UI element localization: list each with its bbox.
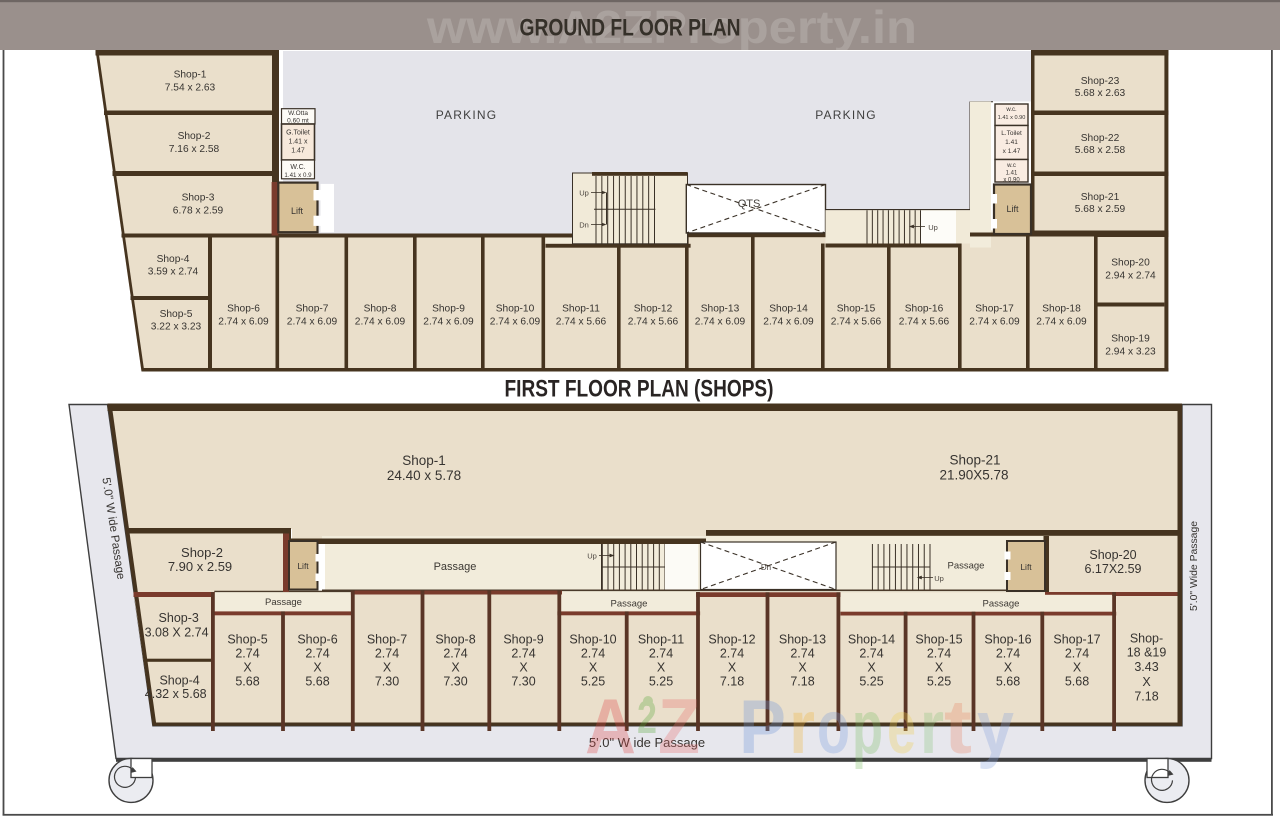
svg-text:Shop-11: Shop-11: [638, 633, 684, 647]
svg-text:Shop-5: Shop-5: [160, 309, 193, 320]
svg-text:Shop-1: Shop-1: [174, 70, 207, 81]
svg-text:Lift: Lift: [291, 206, 304, 216]
svg-text:7.30: 7.30: [443, 675, 467, 689]
svg-text:Lift: Lift: [297, 561, 309, 571]
svg-text:x 0.90: x 0.90: [1003, 178, 1020, 184]
svg-text:FIRST FLOOR PLAN (SHOPS): FIRST FLOOR PLAN (SHOPS): [505, 376, 774, 403]
svg-text:X: X: [313, 661, 322, 675]
svg-text:5.68 x 2.59: 5.68 x 2.59: [1075, 204, 1126, 215]
svg-text:1.41: 1.41: [1005, 139, 1018, 146]
svg-text:Shop-7: Shop-7: [367, 633, 407, 647]
svg-text:1.47: 1.47: [291, 148, 305, 155]
svg-text:2.74 x 6.09: 2.74 x 6.09: [423, 317, 474, 328]
svg-text:Shop-3: Shop-3: [182, 193, 215, 204]
svg-text:Lift: Lift: [1006, 204, 1019, 214]
svg-text:2.74: 2.74: [1065, 647, 1089, 661]
svg-text:5.68 x 2.58: 5.68 x 2.58: [1075, 145, 1126, 156]
svg-text:Shop-15: Shop-15: [837, 304, 876, 315]
svg-text:5.68 x 2.63: 5.68 x 2.63: [1075, 88, 1126, 99]
svg-text:W.C.: W.C.: [290, 164, 305, 171]
svg-text:7.30: 7.30: [511, 675, 535, 689]
svg-text:2.74: 2.74: [511, 647, 535, 661]
svg-text:2.74 x 6.09: 2.74 x 6.09: [695, 317, 746, 328]
svg-text:2.74: 2.74: [720, 647, 744, 661]
svg-text:Shop-23: Shop-23: [1081, 76, 1120, 87]
svg-text:1.41 x 0.9: 1.41 x 0.9: [284, 172, 312, 179]
svg-text:2.74 x 5.66: 2.74 x 5.66: [628, 317, 679, 328]
svg-text:x 1.47: x 1.47: [1003, 148, 1021, 155]
svg-text:2.74: 2.74: [859, 647, 883, 661]
svg-text:p: p: [852, 685, 883, 770]
svg-text:Z: Z: [658, 682, 700, 770]
svg-text:Dn: Dn: [761, 563, 771, 572]
svg-text:5'.0" Wide Passage: 5'.0" Wide Passage: [1189, 521, 1200, 611]
svg-text:Shop-12: Shop-12: [708, 633, 755, 647]
svg-text:X: X: [1073, 661, 1082, 675]
svg-text:Passage: Passage: [265, 597, 302, 608]
svg-text:1.41 x: 1.41 x: [288, 139, 308, 146]
svg-text:X: X: [798, 661, 807, 675]
svg-text:Shop-16: Shop-16: [984, 633, 1031, 647]
svg-text:Shop-2: Shop-2: [178, 131, 211, 142]
svg-text:2.74: 2.74: [996, 647, 1020, 661]
svg-text:y: y: [977, 685, 1014, 770]
svg-text:r: r: [789, 685, 815, 770]
svg-text:X: X: [867, 661, 876, 675]
svg-text:2.74: 2.74: [649, 647, 673, 661]
svg-text:X: X: [728, 661, 737, 675]
svg-text:2.74: 2.74: [927, 647, 951, 661]
svg-text:P: P: [739, 685, 786, 770]
svg-text:6.78 x 2.59: 6.78 x 2.59: [173, 206, 224, 217]
svg-text:Shop-13: Shop-13: [779, 633, 826, 647]
svg-text:Shop-9: Shop-9: [503, 633, 543, 647]
svg-text:2.74: 2.74: [305, 647, 329, 661]
svg-text:Shop-11: Shop-11: [562, 304, 600, 315]
svg-text:X: X: [657, 661, 666, 675]
svg-text:r: r: [920, 685, 944, 770]
svg-text:X: X: [935, 661, 944, 675]
svg-text:3.59 x 2.74: 3.59 x 2.74: [148, 267, 199, 278]
svg-text:Shop-4: Shop-4: [159, 674, 199, 688]
svg-text:7.90 x 2.59: 7.90 x 2.59: [168, 559, 232, 574]
svg-text:Shop-15: Shop-15: [915, 633, 962, 647]
svg-text:G.Toilet: G.Toilet: [286, 130, 310, 137]
svg-text:Shop-21: Shop-21: [949, 453, 1000, 468]
svg-text:w.c: w.c: [1006, 163, 1016, 169]
svg-text:X: X: [589, 661, 598, 675]
svg-text:2.74 x 5.66: 2.74 x 5.66: [556, 317, 607, 328]
svg-text:Shop-7: Shop-7: [296, 304, 329, 315]
svg-text:Shop-6: Shop-6: [297, 633, 337, 647]
svg-text:2.74 x 6.09: 2.74 x 6.09: [490, 317, 541, 328]
svg-text:Shop-22: Shop-22: [1081, 133, 1120, 144]
svg-text:Shop-8: Shop-8: [435, 633, 475, 647]
svg-text:Up: Up: [587, 552, 597, 561]
svg-text:2.74 x 6.09: 2.74 x 6.09: [287, 317, 338, 328]
svg-text:X: X: [383, 661, 392, 675]
svg-text:7.16 x 2.58: 7.16 x 2.58: [169, 144, 220, 155]
svg-text:2.74 x 6.09: 2.74 x 6.09: [763, 317, 814, 328]
svg-text:Shop-5: Shop-5: [227, 633, 267, 647]
svg-text:24.40 x 5.78: 24.40 x 5.78: [387, 468, 461, 483]
svg-text:Up: Up: [934, 574, 944, 583]
svg-text:Shop-18: Shop-18: [1042, 304, 1081, 315]
svg-text:Passage: Passage: [434, 561, 477, 573]
svg-text:3.43: 3.43: [1134, 660, 1158, 674]
svg-text:1.41: 1.41: [1006, 171, 1018, 177]
svg-text:2.94 x 3.23: 2.94 x 3.23: [1105, 347, 1156, 358]
svg-text:21.90X5.78: 21.90X5.78: [939, 468, 1008, 483]
svg-text:6.17X2.59: 6.17X2.59: [1085, 562, 1142, 576]
svg-text:PARKING: PARKING: [436, 108, 498, 122]
svg-text:w.c.: w.c.: [1005, 107, 1017, 113]
svg-text:o: o: [817, 685, 850, 770]
svg-text:Shop-: Shop-: [1130, 632, 1163, 646]
svg-text:2.74 x 6.09: 2.74 x 6.09: [218, 317, 269, 328]
svg-text:2.74: 2.74: [443, 647, 467, 661]
svg-text:2.74 x 6.09: 2.74 x 6.09: [969, 317, 1020, 328]
svg-text:Dn: Dn: [579, 221, 589, 230]
svg-text:5.68: 5.68: [305, 675, 329, 689]
svg-text:e: e: [887, 685, 916, 770]
svg-text:2.74: 2.74: [790, 647, 814, 661]
svg-text:Shop-17: Shop-17: [1053, 633, 1100, 647]
svg-text:Shop-12: Shop-12: [634, 304, 673, 315]
svg-text:Shop-19: Shop-19: [1111, 334, 1150, 345]
svg-text:Shop-20: Shop-20: [1089, 548, 1136, 562]
svg-text:5.68: 5.68: [1065, 675, 1089, 689]
svg-text:Lift: Lift: [1020, 562, 1032, 572]
svg-text:2.94 x 2.74: 2.94 x 2.74: [1105, 271, 1156, 282]
svg-text:X: X: [1142, 675, 1151, 689]
svg-text:Shop-9: Shop-9: [432, 304, 465, 315]
svg-text:Shop-14: Shop-14: [848, 633, 895, 647]
svg-text:1.41 x 0.90: 1.41 x 0.90: [998, 115, 1026, 121]
svg-text:L.Toilet: L.Toilet: [1001, 130, 1022, 137]
svg-text:3.08 X 2.74: 3.08 X 2.74: [145, 626, 209, 640]
svg-text:Shop-3: Shop-3: [159, 611, 199, 625]
svg-text:X: X: [451, 661, 460, 675]
svg-text:Shop-21: Shop-21: [1081, 192, 1120, 203]
svg-text:Passage: Passage: [983, 599, 1020, 610]
svg-text:5.68: 5.68: [235, 675, 259, 689]
svg-text:Shop-14: Shop-14: [769, 304, 808, 315]
svg-text:7.30: 7.30: [375, 675, 399, 689]
svg-text:PARKING: PARKING: [815, 108, 877, 122]
svg-text:Shop-10: Shop-10: [496, 304, 535, 315]
svg-text:3.22 x 3.23: 3.22 x 3.23: [151, 322, 202, 333]
svg-text:2.74 x 5.66: 2.74 x 5.66: [831, 317, 882, 328]
svg-text:X: X: [243, 661, 252, 675]
svg-text:18 &19: 18 &19: [1127, 646, 1167, 660]
svg-text:t: t: [944, 685, 972, 770]
svg-text:2.74 x 6.09: 2.74 x 6.09: [355, 317, 406, 328]
svg-text:Shop-10: Shop-10: [569, 633, 616, 647]
svg-text:Shop-4: Shop-4: [157, 254, 190, 265]
svg-text:Shop-8: Shop-8: [364, 304, 397, 315]
svg-text:Shop-13: Shop-13: [701, 304, 740, 315]
svg-text:A: A: [585, 682, 636, 770]
svg-text:Passage: Passage: [611, 599, 648, 610]
svg-text:7.54 x 2.63: 7.54 x 2.63: [165, 83, 216, 94]
svg-text:X: X: [1004, 661, 1013, 675]
svg-text:2.74: 2.74: [581, 647, 605, 661]
svg-text:Shop-17: Shop-17: [975, 304, 1014, 315]
svg-text:Passage: Passage: [948, 561, 985, 572]
svg-text:Shop-2: Shop-2: [181, 545, 223, 560]
svg-text:2.74: 2.74: [235, 647, 259, 661]
svg-text:2.74 x 6.09: 2.74 x 6.09: [1036, 317, 1087, 328]
svg-text:QTS: QTS: [738, 198, 761, 210]
svg-text:Shop-1: Shop-1: [402, 453, 446, 468]
svg-text:X: X: [519, 661, 528, 675]
svg-text:2.74 x 5.66: 2.74 x 5.66: [899, 317, 950, 328]
svg-text:Shop-6: Shop-6: [227, 304, 260, 315]
svg-text:7.18: 7.18: [1134, 690, 1158, 704]
svg-text:GROUND FL OOR PLAN: GROUND FL OOR PLAN: [520, 15, 741, 42]
svg-text:4.32 x 5.68: 4.32 x 5.68: [145, 687, 207, 701]
svg-text:Shop-16: Shop-16: [905, 304, 944, 315]
svg-text:2.74: 2.74: [375, 647, 399, 661]
svg-text:Up: Up: [579, 189, 589, 198]
svg-text:Shop-20: Shop-20: [1111, 258, 1150, 269]
svg-text:Up: Up: [928, 223, 938, 232]
svg-text:W.Otta: W.Otta: [288, 110, 308, 117]
